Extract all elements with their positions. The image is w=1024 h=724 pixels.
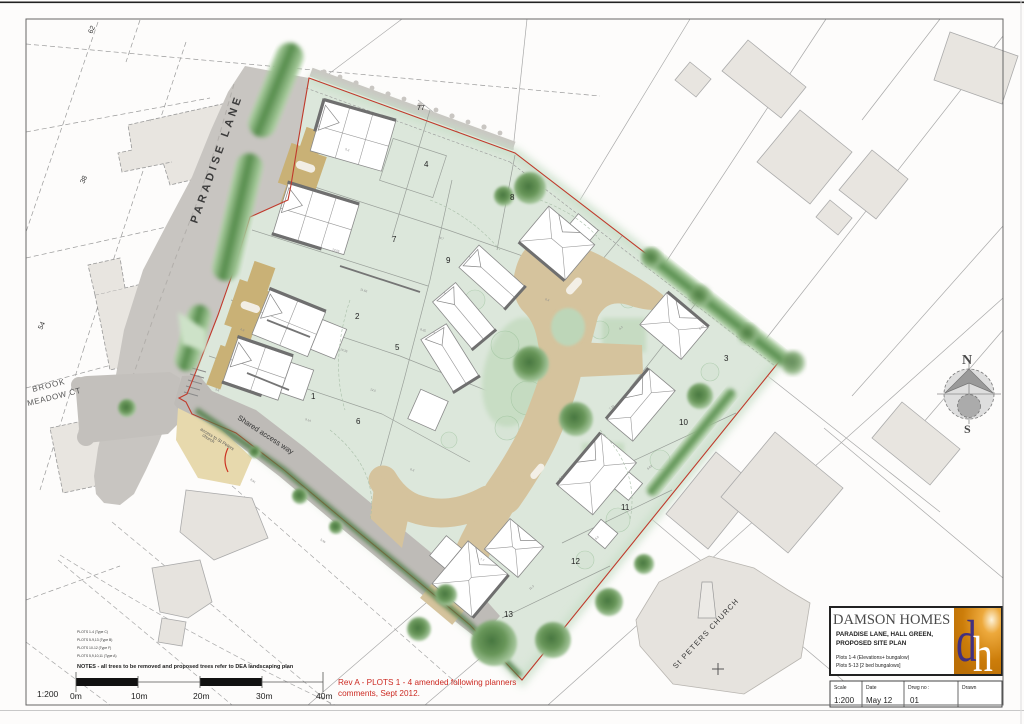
svg-text:Date: Date [866, 685, 877, 691]
svg-text:comments, Sept 2012.: comments, Sept 2012. [338, 689, 420, 698]
svg-text:10: 10 [679, 418, 688, 427]
svg-text:PLOTS 10-12 (Type F): PLOTS 10-12 (Type F) [77, 646, 111, 650]
svg-text:Rev A - PLOTS 1 - 4 amended fo: Rev A - PLOTS 1 - 4 amended following pl… [338, 678, 516, 687]
svg-text:7: 7 [392, 235, 397, 244]
svg-text:3: 3 [724, 354, 729, 363]
svg-text:PLOTS 5,9,10,11 (Type A): PLOTS 5,9,10,11 (Type A) [77, 654, 117, 658]
svg-text:40m: 40m [316, 691, 333, 701]
svg-text:PARADISE LANE, HALL GREEN,: PARADISE LANE, HALL GREEN, [836, 631, 933, 638]
svg-text:12: 12 [571, 557, 580, 566]
svg-text:30m: 30m [256, 691, 273, 701]
svg-text:PROPOSED SITE PLAN: PROPOSED SITE PLAN [836, 640, 907, 647]
svg-text:10m: 10m [131, 691, 148, 701]
svg-text:PLOTS 5-9,13 (Type B): PLOTS 5-9,13 (Type B) [77, 638, 112, 642]
svg-text:0m: 0m [70, 691, 82, 701]
svg-text:11: 11 [621, 503, 630, 512]
svg-text:PLOTS 1-4 (Type C): PLOTS 1-4 (Type C) [77, 630, 108, 634]
svg-text:h: h [973, 626, 993, 682]
svg-text:DAMSON HOMES: DAMSON HOMES [833, 612, 950, 628]
svg-text:20m: 20m [193, 691, 210, 701]
svg-text:Scale: Scale [834, 685, 847, 691]
svg-text:2: 2 [355, 312, 360, 321]
svg-text:1: 1 [311, 392, 316, 401]
svg-text:1:200: 1:200 [37, 689, 59, 699]
svg-text:01: 01 [910, 696, 919, 705]
svg-text:4: 4 [424, 160, 429, 169]
svg-text:1:200: 1:200 [834, 696, 855, 705]
svg-text:9: 9 [446, 256, 451, 265]
svg-text:8: 8 [510, 193, 515, 202]
svg-text:N: N [962, 353, 972, 368]
svg-text:77: 77 [417, 105, 425, 112]
svg-text:S: S [964, 422, 971, 436]
svg-text:Plots 5-13 [2 bed bungalows]: Plots 5-13 [2 bed bungalows] [836, 663, 901, 669]
svg-text:May 12: May 12 [866, 696, 893, 705]
svg-text:13: 13 [504, 610, 513, 619]
svg-text:Drwg no :: Drwg no : [908, 685, 929, 691]
svg-text:5: 5 [395, 343, 400, 352]
svg-text:NOTES - all trees to be remove: NOTES - all trees to be removed and prop… [77, 664, 294, 670]
svg-text:Plots 1-4 (Elevations+ bunga: Plots 1-4 (Elevations+ bungalow) [836, 655, 910, 661]
svg-text:6: 6 [356, 417, 361, 426]
svg-text:Drawn: Drawn [962, 685, 977, 691]
